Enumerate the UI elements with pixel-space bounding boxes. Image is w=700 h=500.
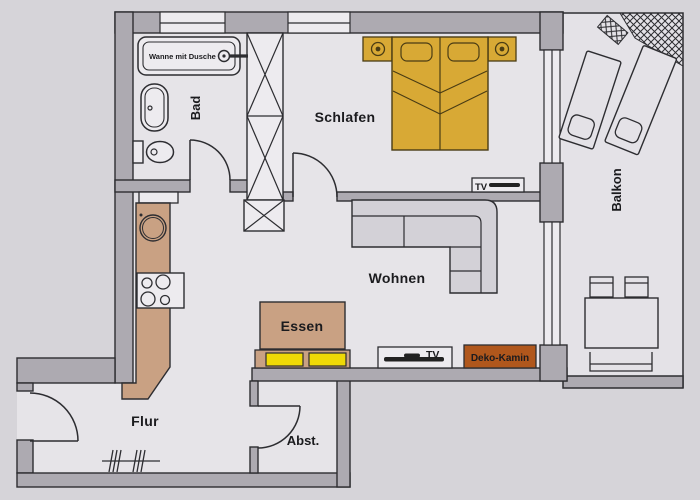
room-label-flur: Flur <box>131 413 159 429</box>
stove <box>137 273 184 308</box>
kamin-label: Deko-Kamin <box>471 353 529 364</box>
kitchen-cabinet <box>139 192 178 203</box>
window-top-2 <box>288 12 350 33</box>
wall-entry-jamb-top <box>17 383 33 391</box>
wall-abst-left-bottom <box>250 447 258 473</box>
tv-label-wohnen: TV <box>426 349 439 361</box>
wall-entry-jamb-bottom <box>17 440 33 473</box>
tv-label-schlafen: TV <box>475 182 488 193</box>
double-bed <box>392 37 488 150</box>
wall-right-bottom <box>540 345 567 381</box>
room-label-abst: Abst. <box>287 433 320 448</box>
washbasin <box>141 84 168 131</box>
floor-plan-drawing: Wanne mit Dusche Bad Schlafen TV Wohnen … <box>0 0 700 500</box>
dining <box>255 302 350 368</box>
floor-plan-photo: Wanne mit Dusche Bad Schlafen TV Wohnen … <box>0 0 700 500</box>
wall-right-mid <box>540 163 563 222</box>
tv-sideboard-wohnen <box>378 347 452 368</box>
room-label-bad: Bad <box>188 96 203 121</box>
dining-chair-1 <box>266 353 303 366</box>
balcony-bottom-wall <box>563 376 683 388</box>
room-label-wohnen: Wohnen <box>369 270 426 286</box>
installation-shaft <box>244 33 284 231</box>
balcony-table <box>585 298 658 348</box>
toilet <box>133 141 174 163</box>
tub-label: Wanne mit Dusche <box>149 52 216 61</box>
wall-abst-left-top <box>250 381 258 406</box>
window-balcony-wohnen <box>544 222 560 345</box>
wall-wohnen-bottom <box>252 368 567 381</box>
window-balcony-schlafen <box>544 50 560 163</box>
wall-left-upper <box>115 12 133 383</box>
wall-step <box>17 358 115 383</box>
room-label-essen: Essen <box>281 318 324 334</box>
wall-right-top <box>540 12 563 50</box>
wall-abst-right <box>337 368 350 487</box>
wall-bottom <box>17 473 350 487</box>
window-top-1 <box>160 12 225 33</box>
tv-flatscreen-icon <box>489 183 520 187</box>
wall-bad-bottom <box>115 180 190 192</box>
room-label-balkon: Balkon <box>609 168 624 211</box>
wall-bad-stub <box>230 180 249 192</box>
room-label-schlafen: Schlafen <box>315 109 376 125</box>
dining-chair-2 <box>309 353 346 366</box>
